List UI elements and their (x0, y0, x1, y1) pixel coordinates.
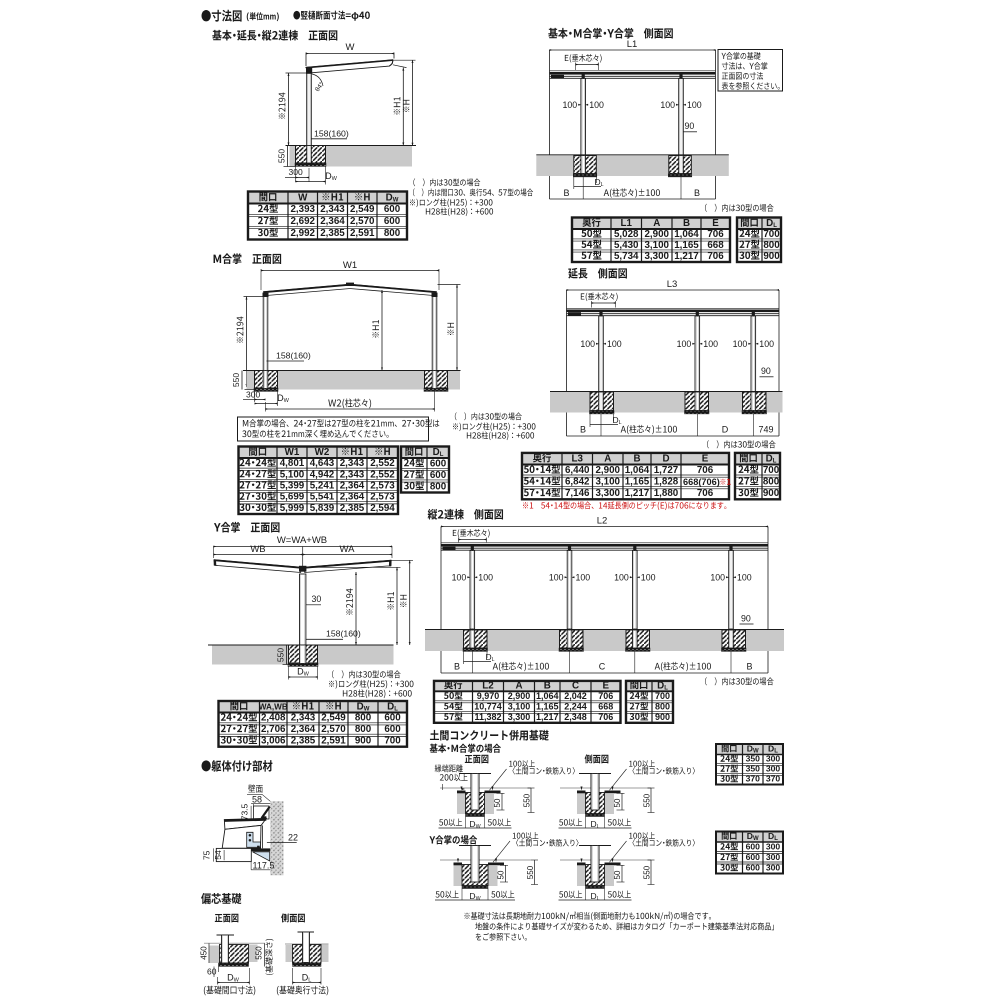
svg-text:706: 706 (697, 488, 714, 499)
svg-text:11,382: 11,382 (474, 712, 501, 722)
svg-text:B: B (454, 662, 460, 672)
svg-text:E: E (602, 680, 609, 691)
svg-text:158(160): 158(160) (276, 351, 311, 361)
svg-text:A: A (653, 218, 660, 229)
svg-text:1,727: 1,727 (654, 465, 679, 476)
svg-text:100: 100 (733, 339, 748, 349)
svg-text:73.5: 73.5 (239, 803, 249, 820)
svg-text:300: 300 (289, 167, 303, 177)
svg-text:5,541: 5,541 (310, 492, 335, 503)
svg-text:3,300: 3,300 (508, 712, 531, 722)
svg-text:3,100: 3,100 (644, 240, 669, 251)
svg-text:300: 300 (766, 852, 781, 862)
svg-text:50: 50 (613, 870, 622, 879)
svg-text:2,343: 2,343 (340, 469, 365, 480)
svg-text:DL: DL (594, 177, 603, 188)
svg-text:7,146: 7,146 (565, 488, 590, 499)
svg-text:706: 706 (697, 465, 714, 476)
svg-text:300: 300 (766, 754, 781, 764)
svg-text:3,100: 3,100 (508, 701, 531, 711)
svg-text:300: 300 (766, 863, 781, 873)
svg-text:2,900: 2,900 (595, 465, 620, 476)
svg-text:A: A (515, 680, 522, 691)
svg-text:550: 550 (231, 373, 241, 387)
svg-text:550: 550 (276, 648, 286, 662)
svg-text:600: 600 (384, 724, 401, 735)
svg-text:90: 90 (685, 121, 695, 131)
svg-text:1,165: 1,165 (536, 701, 559, 711)
svg-text:2,385: 2,385 (320, 228, 345, 239)
svg-text:800: 800 (763, 476, 780, 487)
svg-text:B: B (683, 218, 690, 229)
svg-text:6,842: 6,842 (565, 476, 590, 487)
svg-text:4,643: 4,643 (310, 458, 335, 469)
svg-text:550: 550 (526, 865, 535, 879)
svg-text:5,999: 5,999 (280, 503, 305, 514)
svg-text:2,591: 2,591 (321, 736, 346, 747)
svg-text:50: 50 (613, 798, 622, 807)
svg-text:D: D (722, 425, 729, 435)
svg-text:B: B (580, 425, 586, 435)
svg-text:2,364: 2,364 (340, 492, 365, 503)
svg-text:370: 370 (746, 774, 761, 784)
svg-text:C: C (572, 680, 579, 691)
svg-text:2,706: 2,706 (261, 724, 286, 735)
svg-text:100: 100 (607, 339, 622, 349)
svg-text:2,549: 2,549 (321, 713, 346, 724)
svg-text:158(160): 158(160) (314, 129, 349, 139)
svg-text:600: 600 (384, 204, 401, 215)
svg-text:600: 600 (430, 458, 447, 469)
svg-text:100: 100 (660, 100, 675, 110)
svg-text:WB: WB (250, 544, 265, 555)
svg-text:W2: W2 (315, 447, 330, 458)
svg-text:2,364: 2,364 (340, 480, 365, 491)
svg-text:900: 900 (655, 712, 670, 722)
svg-text:W=WA+WB: W=WA+WB (277, 535, 327, 546)
svg-text:2,042: 2,042 (564, 691, 587, 701)
svg-text:2,385: 2,385 (340, 503, 365, 514)
svg-text:6,440: 6,440 (565, 465, 590, 476)
svg-text:2,343: 2,343 (291, 713, 316, 724)
svg-text:100: 100 (589, 100, 604, 110)
svg-text:100: 100 (580, 339, 595, 349)
svg-text:5,699: 5,699 (280, 492, 305, 503)
svg-text:706: 706 (598, 691, 613, 701)
svg-text:B: B (633, 454, 640, 465)
svg-text:2,343: 2,343 (340, 458, 365, 469)
svg-text:700: 700 (384, 736, 401, 747)
svg-text:5,241: 5,241 (310, 480, 335, 491)
svg-text:350: 350 (746, 754, 761, 764)
svg-text:700: 700 (763, 465, 780, 476)
svg-text:100: 100 (641, 573, 656, 583)
svg-text:E: E (712, 218, 719, 229)
svg-text:C: C (599, 662, 606, 672)
svg-text:5,399: 5,399 (280, 480, 305, 491)
svg-text:706: 706 (707, 251, 724, 262)
svg-text:W: W (298, 193, 308, 204)
svg-text:B: B (563, 188, 569, 198)
svg-text:DW: DW (277, 393, 290, 404)
svg-text:2,552: 2,552 (370, 458, 395, 469)
svg-text:600: 600 (746, 863, 761, 873)
svg-text:370: 370 (766, 774, 781, 784)
svg-text:5,028: 5,028 (614, 229, 639, 240)
svg-text:2,573: 2,573 (370, 492, 395, 503)
svg-text:9,970: 9,970 (477, 691, 500, 701)
svg-text:117.5: 117.5 (253, 860, 275, 870)
svg-text:θ4°: θ4° (313, 80, 325, 93)
svg-text:700: 700 (655, 691, 670, 701)
svg-text:5,839: 5,839 (310, 503, 335, 514)
svg-text:W1: W1 (343, 260, 357, 271)
svg-text:54: 54 (213, 850, 223, 860)
svg-text:1,217: 1,217 (625, 488, 650, 499)
svg-text:100: 100 (549, 573, 564, 583)
svg-text:600: 600 (384, 713, 401, 724)
svg-text:2,570: 2,570 (350, 216, 375, 227)
svg-text:2,570: 2,570 (321, 724, 346, 735)
svg-text:A: A (604, 454, 611, 465)
svg-text:L3: L3 (572, 454, 584, 465)
svg-text:22: 22 (288, 833, 298, 843)
svg-text:100: 100 (576, 573, 591, 583)
svg-text:DL: DL (612, 415, 621, 426)
svg-text:300: 300 (246, 390, 260, 400)
svg-text:10,774: 10,774 (474, 701, 502, 711)
svg-text:B: B (694, 188, 700, 198)
svg-text:2,591: 2,591 (350, 228, 375, 239)
svg-text:600: 600 (746, 852, 761, 862)
svg-text:158(160): 158(160) (326, 629, 361, 639)
svg-text:2,549: 2,549 (350, 204, 375, 215)
svg-text:WA,WB: WA,WB (259, 703, 288, 712)
svg-text:668: 668 (707, 240, 724, 251)
svg-text:900: 900 (763, 251, 780, 262)
svg-text:1,165: 1,165 (674, 240, 699, 251)
svg-text:800: 800 (430, 481, 447, 492)
svg-text:DW: DW (227, 973, 240, 984)
svg-text:100: 100 (703, 339, 718, 349)
svg-text:2,552: 2,552 (370, 469, 395, 480)
svg-text:800: 800 (355, 713, 372, 724)
svg-text:2,992: 2,992 (290, 228, 315, 239)
svg-text:900: 900 (355, 736, 372, 747)
svg-text:W1: W1 (285, 447, 300, 458)
svg-text:1,064: 1,064 (625, 465, 650, 476)
svg-text:3,300: 3,300 (644, 251, 669, 262)
svg-text:L2: L2 (482, 680, 494, 691)
svg-text:3,006: 3,006 (261, 736, 286, 747)
svg-text:DL: DL (485, 652, 494, 663)
svg-text:700: 700 (763, 229, 780, 240)
svg-text:1,064: 1,064 (674, 229, 699, 240)
svg-text:800: 800 (763, 240, 780, 251)
svg-text:4,801: 4,801 (280, 458, 305, 469)
svg-text:2,594: 2,594 (370, 503, 395, 514)
svg-text:749: 749 (758, 425, 773, 435)
svg-text:100: 100 (737, 573, 752, 583)
svg-text:2,900: 2,900 (508, 691, 531, 701)
svg-text:600: 600 (746, 842, 761, 852)
svg-text:DW: DW (325, 171, 338, 182)
svg-text:550: 550 (643, 865, 652, 879)
svg-text:2,385: 2,385 (291, 736, 316, 747)
svg-text:2,900: 2,900 (644, 229, 669, 240)
svg-text:90: 90 (761, 366, 771, 376)
svg-text:L2: L2 (597, 516, 608, 527)
svg-text:2,408: 2,408 (261, 713, 286, 724)
svg-text:2,364: 2,364 (291, 724, 316, 735)
svg-text:L1: L1 (627, 39, 638, 50)
svg-text:2,343: 2,343 (320, 204, 345, 215)
svg-text:1,828: 1,828 (654, 476, 679, 487)
svg-text:800: 800 (355, 724, 372, 735)
svg-text:5,100: 5,100 (280, 469, 305, 480)
svg-text:3,100: 3,100 (595, 476, 620, 487)
svg-text:550: 550 (277, 149, 287, 163)
svg-text:2,692: 2,692 (290, 216, 315, 227)
svg-text:100: 100 (759, 339, 774, 349)
svg-text:100: 100 (614, 573, 629, 583)
svg-text:90: 90 (741, 614, 751, 624)
svg-text:5,430: 5,430 (614, 240, 639, 251)
svg-text:300: 300 (766, 842, 781, 852)
svg-text:550: 550 (523, 793, 532, 807)
svg-text:60: 60 (207, 967, 217, 977)
svg-text:300: 300 (766, 764, 781, 774)
svg-text:550: 550 (643, 793, 652, 807)
svg-text:2,348: 2,348 (564, 712, 587, 722)
svg-text:550: 550 (255, 946, 264, 960)
svg-text:100: 100 (710, 573, 725, 583)
svg-text:D: D (662, 454, 669, 465)
svg-text:B: B (746, 662, 752, 672)
svg-text:75: 75 (202, 850, 212, 860)
svg-text:2,393: 2,393 (290, 204, 315, 215)
svg-text:2,244: 2,244 (564, 701, 587, 711)
svg-text:E: E (702, 454, 709, 465)
svg-text:2,364: 2,364 (320, 216, 345, 227)
svg-text:L1: L1 (621, 218, 633, 229)
svg-text:DL: DL (302, 973, 312, 984)
svg-text:668(706): 668(706) (683, 477, 720, 487)
svg-text:600: 600 (430, 470, 447, 481)
svg-text:706: 706 (598, 712, 613, 722)
svg-text:3,300: 3,300 (595, 488, 620, 499)
svg-text:100: 100 (478, 573, 493, 583)
svg-text:L3: L3 (667, 279, 678, 290)
svg-text:706: 706 (707, 229, 724, 240)
svg-text:450: 450 (200, 946, 209, 960)
svg-text:50: 50 (497, 870, 506, 879)
svg-text:30: 30 (312, 594, 322, 604)
svg-text:100: 100 (563, 100, 578, 110)
svg-text:DW: DW (297, 667, 310, 678)
svg-text:1,217: 1,217 (536, 712, 559, 722)
svg-text:800: 800 (384, 228, 401, 239)
svg-text:4,942: 4,942 (310, 469, 335, 480)
svg-text:50: 50 (493, 798, 502, 807)
svg-text:350: 350 (746, 764, 761, 774)
svg-text:100: 100 (677, 339, 692, 349)
svg-text:1,880: 1,880 (654, 488, 679, 499)
svg-text:5,734: 5,734 (614, 251, 639, 262)
svg-text:800: 800 (655, 701, 670, 711)
svg-text:1,165: 1,165 (625, 476, 650, 487)
svg-text:668: 668 (598, 701, 613, 711)
svg-text:1,217: 1,217 (674, 251, 699, 262)
svg-text:W: W (346, 42, 355, 53)
svg-text:58: 58 (252, 795, 262, 805)
svg-text:100: 100 (687, 100, 702, 110)
svg-text:2,573: 2,573 (370, 480, 395, 491)
svg-text:1,064: 1,064 (536, 691, 559, 701)
svg-text:WA: WA (340, 544, 356, 555)
svg-text:B: B (544, 680, 551, 691)
svg-text:600: 600 (384, 216, 401, 227)
svg-text:100: 100 (452, 573, 467, 583)
svg-text:900: 900 (763, 488, 780, 499)
